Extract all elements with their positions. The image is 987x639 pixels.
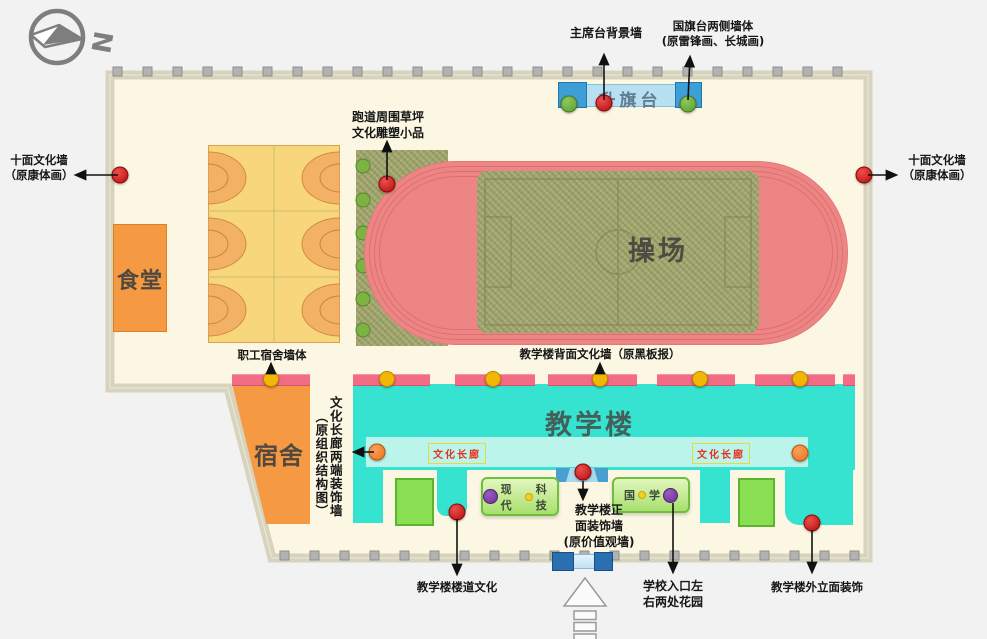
callout-arrows: [0, 0, 987, 639]
callout-ten-walls-right: 十面文化墙 （原康体画）: [892, 153, 982, 183]
callout-flag-side-walls: 国旗台两侧墙体 (原雷锋画、长城画): [653, 19, 773, 49]
callout-corridor-end-walls: 文化长廊两端装饰墙 （原组织结构图）: [313, 396, 342, 541]
callout-front-decor-wall: 教学楼正 面装饰墙 (原价值观墙): [554, 503, 644, 550]
compass-icon: N: [16, 4, 126, 76]
compass-north-letter: N: [84, 29, 117, 56]
callout-corridor-culture: 教学楼楼道文化: [412, 580, 502, 595]
callout-stage-back-wall: 主席台背景墙: [546, 26, 666, 42]
campus-site-plan: 操场 食堂 宿舍 教学楼 文化长廊: [0, 0, 987, 639]
callout-track-sculpture: 跑道周围草坪 文化雕塑小品: [352, 110, 424, 142]
callout-facade-decor: 教学楼外立面装饰: [764, 580, 870, 595]
callout-ten-walls-left: 十面文化墙 （原康体画）: [0, 153, 78, 183]
callout-staff-dorm-wall: 职工宿舍墙体: [232, 348, 312, 363]
callout-back-culture-wall: 教学楼背面文化墙（原黑板报）: [510, 347, 690, 362]
callout-entrance-gardens: 学校入口左 右两处花园: [643, 579, 703, 611]
